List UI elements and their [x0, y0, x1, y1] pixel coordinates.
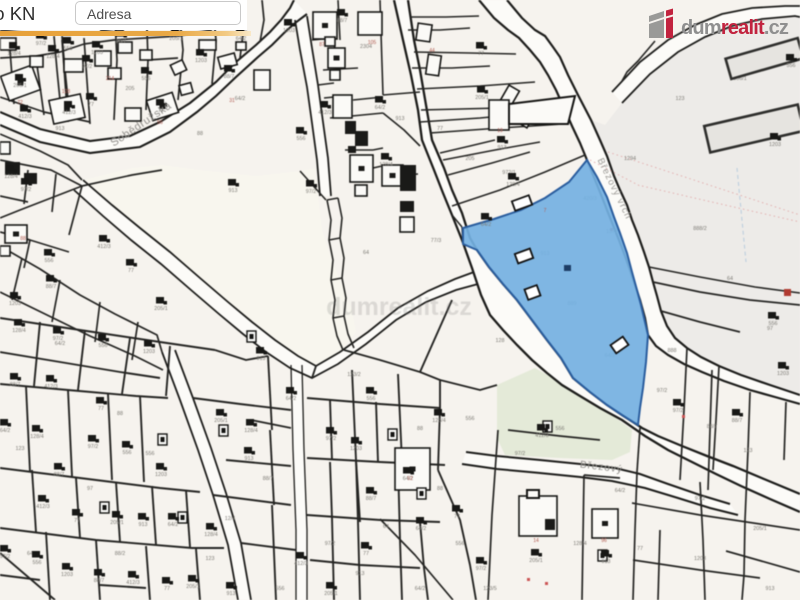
svg-text:123: 123: [206, 556, 215, 562]
svg-text:97/2: 97/2: [21, 187, 32, 193]
svg-text:205/1: 205/1: [13, 83, 27, 89]
svg-text:88/7: 88/7: [366, 496, 377, 502]
svg-text:64: 64: [363, 250, 369, 256]
svg-text:205/1: 205/1: [110, 520, 124, 526]
svg-text:88: 88: [117, 411, 123, 417]
svg-text:556: 556: [556, 426, 565, 432]
svg-text:88/7: 88/7: [224, 74, 235, 80]
svg-text:97/2: 97/2: [515, 451, 526, 457]
svg-text:88/7: 88/7: [46, 284, 57, 290]
svg-text:88: 88: [197, 131, 203, 137]
svg-text:97/2: 97/2: [88, 444, 99, 450]
svg-text:412/3: 412/3: [44, 384, 58, 390]
svg-text:64/2: 64/2: [236, 36, 247, 42]
svg-text:123/5: 123/5: [483, 586, 497, 592]
svg-text:205/1: 205/1: [529, 558, 543, 564]
svg-text:412/3: 412/3: [62, 110, 76, 116]
svg-text:96: 96: [601, 538, 607, 544]
svg-text:64/2: 64/2: [286, 396, 297, 402]
svg-text:913: 913: [227, 591, 236, 597]
svg-text:77: 77: [363, 551, 369, 557]
svg-text:412/3: 412/3: [97, 244, 111, 250]
svg-text:88/7: 88/7: [116, 39, 127, 45]
svg-text:205/1: 205/1: [186, 584, 200, 590]
svg-text:97/2: 97/2: [306, 189, 317, 195]
svg-text:128: 128: [496, 338, 505, 344]
svg-text:556: 556: [99, 343, 108, 349]
svg-text:1203: 1203: [61, 572, 73, 578]
svg-text:556: 556: [142, 76, 151, 82]
svg-text:913: 913: [602, 559, 611, 565]
svg-text:412/3: 412/3: [126, 580, 140, 586]
svg-text:128/4: 128/4: [379, 162, 393, 168]
svg-text:556: 556: [276, 586, 285, 592]
svg-text:412/3: 412/3: [294, 561, 308, 567]
svg-text:97/2: 97/2: [0, 554, 10, 560]
svg-text:56: 56: [157, 120, 163, 126]
svg-text:64/2: 64/2: [0, 428, 10, 434]
svg-text:88: 88: [20, 236, 26, 242]
svg-text:556: 556: [64, 46, 73, 52]
svg-text:123: 123: [16, 446, 25, 452]
svg-text:913: 913: [257, 356, 266, 362]
svg-text:1203: 1203: [91, 50, 103, 56]
svg-text:97: 97: [87, 486, 93, 492]
svg-text:913: 913: [245, 456, 254, 462]
svg-text:64/2: 64/2: [481, 222, 492, 228]
svg-text:97/2: 97/2: [673, 408, 684, 414]
svg-text:128/4: 128/4: [7, 51, 21, 57]
svg-text:214: 214: [106, 76, 115, 82]
svg-text:128/4: 128/4: [46, 54, 60, 60]
svg-text:888/2: 888/2: [693, 226, 707, 232]
svg-text:205/1: 205/1: [475, 95, 489, 101]
svg-text:128: 128: [62, 89, 71, 95]
svg-text:77/3: 77/3: [431, 238, 442, 244]
svg-text:913: 913: [766, 586, 775, 592]
svg-text:97/2: 97/2: [36, 41, 47, 47]
svg-text:913: 913: [229, 188, 238, 194]
svg-text:205/1: 205/1: [214, 418, 228, 424]
svg-text:412/3: 412/3: [18, 114, 32, 120]
svg-text:77: 77: [478, 51, 484, 57]
svg-text:128/4: 128/4: [573, 541, 587, 547]
svg-text:128/4: 128/4: [506, 182, 520, 188]
svg-text:dumrealit.cz: dumrealit.cz: [326, 293, 472, 321]
svg-text:556: 556: [769, 321, 778, 327]
svg-text:77: 77: [454, 514, 460, 520]
svg-text:31: 31: [229, 98, 235, 104]
svg-text:77: 77: [164, 586, 170, 592]
svg-text:97/2: 97/2: [657, 388, 668, 394]
svg-text:88: 88: [437, 486, 443, 492]
svg-text:556: 556: [466, 416, 475, 422]
svg-text:128/4: 128/4: [30, 434, 44, 440]
svg-text:205/1: 205/1: [154, 306, 168, 312]
svg-text:1203: 1203: [195, 58, 207, 64]
svg-text:1203: 1203: [143, 349, 155, 355]
svg-text:128/4: 128/4: [432, 418, 446, 424]
svg-text:88/7: 88/7: [94, 578, 105, 584]
svg-text:97/2: 97/2: [325, 541, 336, 547]
svg-text:556: 556: [367, 396, 376, 402]
svg-text:64/2: 64/2: [375, 105, 386, 111]
svg-text:913: 913: [498, 145, 507, 151]
svg-text:205/1: 205/1: [324, 591, 338, 597]
svg-text:128/4: 128/4: [204, 532, 218, 538]
svg-text:128/4: 128/4: [244, 428, 258, 434]
svg-text:556: 556: [123, 450, 132, 456]
svg-text:7: 7: [544, 208, 547, 214]
svg-text:1203: 1203: [283, 28, 295, 34]
svg-text:77: 77: [637, 546, 643, 552]
svg-text:52: 52: [407, 476, 413, 482]
svg-text:123: 123: [676, 96, 685, 102]
svg-text:556: 556: [787, 63, 796, 69]
svg-text:913: 913: [56, 126, 65, 132]
svg-text:64/2: 64/2: [235, 96, 246, 102]
svg-text:77: 77: [437, 126, 443, 132]
svg-text:88/7: 88/7: [732, 418, 743, 424]
svg-text:556: 556: [45, 258, 54, 264]
svg-text:1203: 1203: [777, 371, 789, 377]
svg-text:1203: 1203: [9, 301, 21, 307]
svg-text:88/7: 88/7: [263, 476, 274, 482]
svg-text:72: 72: [17, 100, 23, 106]
svg-text:19: 19: [497, 128, 503, 134]
svg-text:88/7: 88/7: [54, 472, 65, 478]
svg-text:88/7: 88/7: [707, 424, 718, 430]
svg-text:77: 77: [74, 518, 80, 524]
svg-text:1203: 1203: [769, 142, 781, 148]
svg-text:97/2: 97/2: [695, 496, 706, 502]
svg-text:556: 556: [456, 541, 465, 547]
svg-text:97/2: 97/2: [326, 436, 337, 442]
svg-text:913: 913: [396, 116, 405, 122]
svg-text:412/3: 412/3: [535, 433, 549, 439]
svg-text:97/2: 97/2: [53, 336, 64, 342]
svg-text:12/4: 12/4: [225, 516, 236, 522]
svg-text:128/4: 128/4: [12, 328, 26, 334]
svg-text:1203: 1203: [694, 556, 706, 562]
svg-text:87: 87: [319, 42, 325, 48]
svg-text:88/7: 88/7: [337, 18, 348, 24]
svg-text:77: 77: [128, 268, 134, 274]
svg-text:128/4: 128/4: [4, 174, 18, 180]
svg-text:913: 913: [139, 522, 148, 528]
svg-text:1203: 1203: [155, 472, 167, 478]
svg-text:105: 105: [368, 40, 377, 46]
svg-text:14: 14: [533, 538, 539, 544]
svg-text:64/2: 64/2: [416, 526, 427, 532]
svg-text:88/7: 88/7: [10, 382, 21, 388]
svg-text:64: 64: [727, 276, 733, 282]
svg-text:412/3: 412/3: [318, 110, 332, 116]
svg-text:64/2: 64/2: [168, 522, 179, 528]
svg-text:556: 556: [33, 560, 42, 566]
svg-text:123: 123: [744, 448, 753, 454]
svg-text:205: 205: [466, 156, 475, 162]
svg-text:123/2: 123/2: [347, 372, 361, 378]
svg-text:1294: 1294: [624, 156, 636, 162]
svg-text:77: 77: [98, 406, 104, 412]
svg-text:97/2: 97/2: [476, 566, 487, 572]
svg-text:556: 556: [297, 136, 306, 142]
svg-text:205: 205: [126, 86, 135, 92]
svg-text:88/2: 88/2: [115, 551, 126, 557]
svg-text:205/1: 205/1: [753, 526, 767, 532]
svg-text:412/3: 412/3: [36, 504, 50, 510]
svg-text:64/2: 64/2: [415, 586, 426, 592]
svg-text:1203: 1203: [350, 446, 362, 452]
svg-text:913: 913: [356, 571, 365, 577]
svg-text:64/2: 64/2: [615, 488, 626, 494]
svg-text:88: 88: [417, 426, 423, 432]
svg-text:556: 556: [146, 451, 155, 457]
svg-text:205/1: 205/1: [169, 36, 183, 42]
svg-text:97/2: 97/2: [82, 64, 93, 70]
svg-text:44: 44: [429, 48, 435, 54]
svg-text:64: 64: [383, 524, 389, 530]
svg-text:77: 77: [88, 102, 94, 108]
svg-text:888: 888: [668, 348, 677, 354]
